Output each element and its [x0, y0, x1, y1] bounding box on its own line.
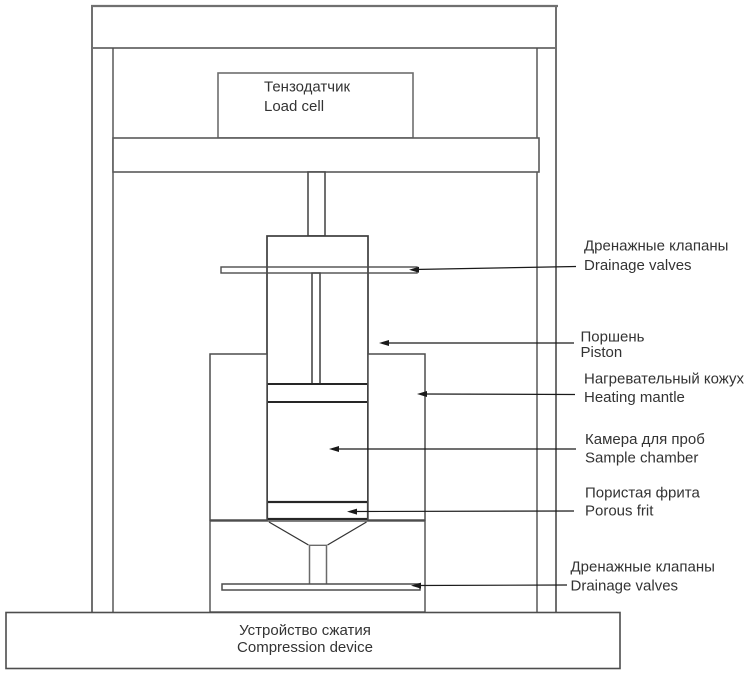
svg-text:Piston: Piston: [581, 344, 623, 361]
svg-text:Тензодатчик: Тензодатчик: [264, 79, 350, 96]
svg-text:Porous frit: Porous frit: [585, 503, 654, 520]
svg-text:Поршень: Поршень: [581, 328, 645, 345]
svg-text:Drainage valves: Drainage valves: [584, 257, 692, 274]
svg-text:Камера для проб: Камера для проб: [585, 431, 705, 448]
svg-text:Нагревательный кожух: Нагревательный кожух: [584, 371, 744, 388]
svg-text:Heating mantle: Heating mantle: [584, 389, 685, 406]
svg-text:Drainage valves: Drainage valves: [571, 578, 679, 595]
svg-text:Устройство сжатия: Устройство сжатия: [239, 622, 371, 639]
svg-text:Load cell: Load cell: [264, 98, 324, 115]
svg-text:Дренажные клапаны: Дренажные клапаны: [571, 559, 715, 576]
svg-text:Compression device: Compression device: [237, 639, 373, 656]
svg-text:Дренажные клапаны: Дренажные клапаны: [584, 237, 728, 254]
svg-text:Пористая фрита: Пористая фрита: [585, 485, 700, 502]
svg-text:Sample chamber: Sample chamber: [585, 449, 698, 466]
